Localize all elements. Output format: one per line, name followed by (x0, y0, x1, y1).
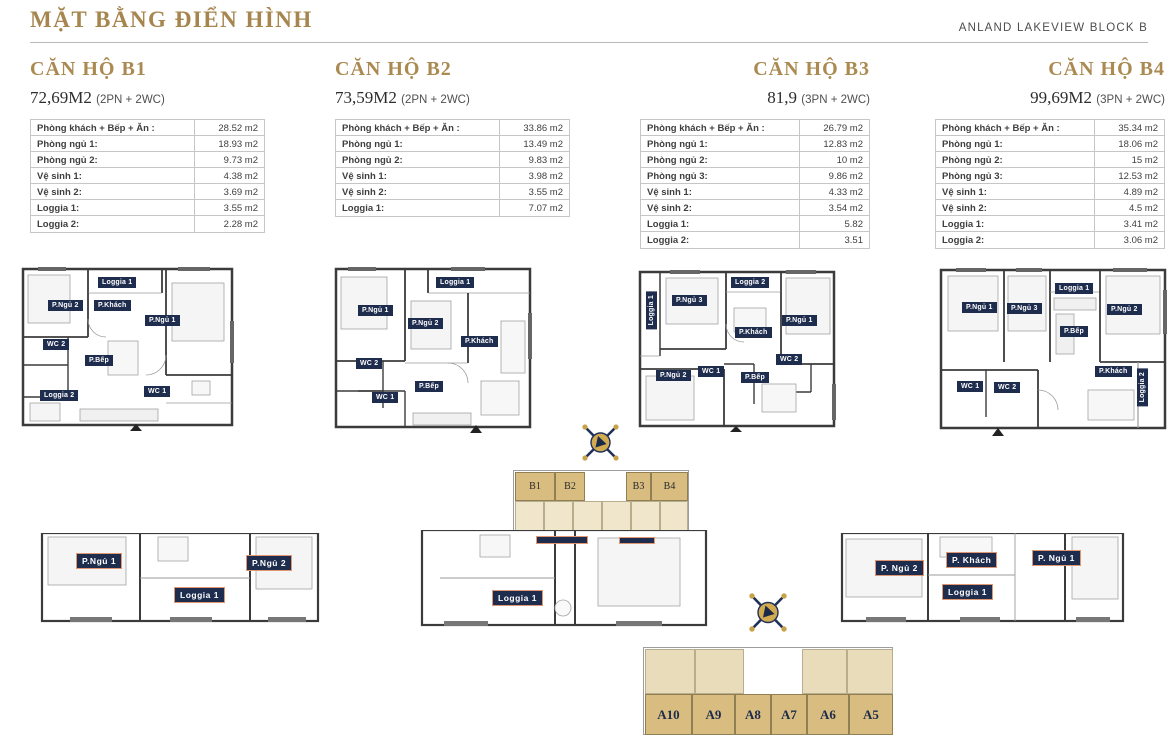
table-row: Phòng ngủ 3:9.86 m2 (641, 168, 869, 184)
row-value: 4.89 m2 (1094, 184, 1164, 199)
table-row: Vệ sinh 1:4.33 m2 (641, 184, 869, 200)
room-label-loggia-1: Loggia 1 (436, 277, 474, 288)
keyplan-cell-label: B1 (529, 481, 541, 492)
row-value: 15 m2 (1094, 152, 1164, 167)
keyplan-cell-label: B4 (664, 481, 676, 492)
cutoff-room-label (536, 536, 588, 544)
row-label: Phòng ngủ 3: (641, 168, 799, 183)
room-label-bedroom-2: P.Ngủ 2 (246, 555, 292, 571)
row-label: Phòng khách + Bếp + Ăn : (936, 120, 1094, 135)
row-value: 9.83 m2 (499, 152, 569, 167)
row-label: Vệ sinh 2: (641, 200, 799, 215)
row-label: Phòng ngủ 1: (31, 136, 194, 151)
row-value: 3.55 m2 (194, 200, 264, 215)
table-row: Phòng khách + Bếp + Ăn :28.52 m2 (31, 120, 264, 136)
table-row: Loggia 2:2.28 m2 (31, 216, 264, 232)
room-label-loggia-1: Loggia 1 (98, 277, 136, 288)
table-row: Phòng khách + Bếp + Ăn :35.34 m2 (936, 120, 1164, 136)
room-label-bedroom-1: P. Ngủ 1 (1032, 550, 1081, 566)
apartment-name: CĂN HỘ B2 (335, 58, 570, 81)
row-value: 18.93 m2 (194, 136, 264, 151)
keyplan-cell-empty (544, 501, 573, 533)
room-label-bedroom-2: P.Ngủ 2 (1107, 304, 1142, 315)
row-label: Loggia 1: (936, 216, 1094, 231)
floor-plan-bottom-right: P. Ngủ 2 P. Khách Loggia 1 P. Ngủ 1 (840, 533, 1125, 628)
apartment-column-b1: CĂN HỘ B1 72,69M2 (2PN + 2WC) Phòng khác… (30, 58, 265, 233)
row-value: 3.69 m2 (194, 184, 264, 199)
room-label-kitchen: P.Bếp (1060, 326, 1088, 337)
floor-plan-drawing-bottom-left (40, 533, 320, 628)
row-value: 10 m2 (799, 152, 869, 167)
row-label: Phòng ngủ 2: (936, 152, 1094, 167)
row-label: Phòng khách + Bếp + Ăn : (641, 120, 799, 135)
keyplan-cell-empty (573, 501, 602, 533)
room-label-living: P.Khách (735, 327, 772, 338)
room-label-loggia-1: Loggia 1 (1055, 283, 1093, 294)
keyplan-cell-empty (695, 649, 744, 694)
page-title: MẶT BẰNG ĐIỂN HÌNH (30, 7, 313, 33)
row-value: 35.34 m2 (1094, 120, 1164, 135)
keyplan-cell-label: A7 (781, 707, 797, 723)
row-value: 12.83 m2 (799, 136, 869, 151)
table-row: Phòng ngủ 1:12.83 m2 (641, 136, 869, 152)
keyplan-cell-a10: A10 (645, 694, 692, 735)
compass-icon (745, 588, 791, 636)
room-label-loggia-1: Loggia 1 (174, 587, 225, 603)
header-divider (30, 42, 1148, 43)
keyplan-cell-a6: A6 (807, 694, 849, 735)
keyplan-cell-label: A9 (706, 707, 722, 723)
table-row: Phòng ngủ 2:9.83 m2 (336, 152, 569, 168)
table-row: Phòng ngủ 2:9.73 m2 (31, 152, 264, 168)
room-label-kitchen: P.Bếp (85, 355, 113, 366)
room-label-loggia-2: Loggia 2 (1137, 368, 1148, 406)
row-label: Phòng khách + Bếp + Ăn : (31, 120, 194, 135)
room-label-wc-1: WC 1 (144, 386, 170, 397)
table-row: Vệ sinh 2:3.69 m2 (31, 184, 264, 200)
keyplan-cell-a9: A9 (692, 694, 735, 735)
apartment-config: (3PN + 2WC) (801, 94, 870, 106)
room-label-bedroom-1: P.Ngủ 1 (76, 553, 122, 569)
row-value: 12.53 m2 (1094, 168, 1164, 183)
table-row: Phòng khách + Bếp + Ăn :26.79 m2 (641, 120, 869, 136)
row-value: 4.5 m2 (1094, 200, 1164, 215)
cutoff-room-label (619, 537, 655, 544)
row-value: 4.33 m2 (799, 184, 869, 199)
floor-plan-drawing-b2 (333, 263, 533, 433)
room-label-wc-2: WC 2 (43, 339, 69, 350)
apartment-config: (2PN + 2WC) (96, 94, 165, 106)
row-label: Vệ sinh 1: (31, 168, 194, 183)
table-row: Vệ sinh 2:3.55 m2 (336, 184, 569, 200)
table-row: Phòng khách + Bếp + Ăn :33.86 m2 (336, 120, 569, 136)
table-row: Loggia 1:3.41 m2 (936, 216, 1164, 232)
table-row: Vệ sinh 2:3.54 m2 (641, 200, 869, 216)
keyplan-cell-b3: B3 (626, 472, 651, 501)
floor-plan-b2: P.Ngủ 1 Loggia 1 P.Ngủ 2 P.Khách WC 2 WC… (333, 263, 533, 433)
table-row: Phòng ngủ 2:15 m2 (936, 152, 1164, 168)
row-label: Vệ sinh 1: (936, 184, 1094, 199)
apartment-config: (2PN + 2WC) (401, 94, 470, 106)
keyplan-cell-b2: B2 (555, 472, 585, 501)
row-label: Vệ sinh 2: (936, 200, 1094, 215)
row-label: Phòng ngủ 2: (641, 152, 799, 167)
row-value: 9.73 m2 (194, 152, 264, 167)
apartment-area: 72,69M2 (2PN + 2WC) (30, 88, 265, 108)
row-label: Vệ sinh 1: (641, 184, 799, 199)
table-row: Phòng ngủ 1:13.49 m2 (336, 136, 569, 152)
row-value: 3.54 m2 (799, 200, 869, 215)
keyplan-cell-label: A6 (820, 707, 836, 723)
room-label-bedroom-3: P.Ngủ 3 (672, 295, 707, 306)
row-value: 4.38 m2 (194, 168, 264, 183)
room-label-bedroom-3: P.Ngủ 3 (1007, 303, 1042, 314)
apartment-config: (3PN + 2WC) (1096, 94, 1165, 106)
row-label: Vệ sinh 2: (31, 184, 194, 199)
row-label: Phòng ngủ 2: (31, 152, 194, 167)
row-value: 3.06 m2 (1094, 232, 1164, 248)
apartment-name: CĂN HỘ B4 (935, 58, 1165, 81)
row-value: 7.07 m2 (499, 200, 569, 216)
floor-plan-drawing-b4 (938, 262, 1168, 436)
block-label: ANLAND LAKEVIEW BLOCK B (959, 22, 1148, 34)
floor-plan-drawing-b3 (636, 264, 838, 432)
apartment-area-value: 99,69M2 (1030, 88, 1092, 107)
row-value: 28.52 m2 (194, 120, 264, 135)
keyplan-cell-b4: B4 (651, 472, 688, 501)
row-label: Phòng ngủ 1: (936, 136, 1094, 151)
table-row: Phòng ngủ 1:18.93 m2 (31, 136, 264, 152)
table-row: Loggia 1:7.07 m2 (336, 200, 569, 216)
keyplan-cell-b1: B1 (515, 472, 555, 501)
room-label-living: P.Khách (1095, 366, 1132, 377)
table-row: Vệ sinh 1:3.98 m2 (336, 168, 569, 184)
row-label: Loggia 2: (641, 232, 799, 248)
apartment-column-b3: CĂN HỘ B3 81,9 (3PN + 2WC) Phòng khách +… (640, 58, 870, 249)
row-value: 3.98 m2 (499, 168, 569, 183)
table-row: Phòng ngủ 3:12.53 m2 (936, 168, 1164, 184)
apartment-name: CĂN HỘ B3 (640, 58, 870, 81)
apartment-area-value: 81,9 (767, 88, 797, 107)
row-label: Phòng khách + Bếp + Ăn : (336, 120, 499, 135)
keyplan-cell-empty (847, 649, 893, 694)
table-row: Phòng ngủ 2:10 m2 (641, 152, 869, 168)
keyplan-block-a: A10 A9 A8 A7 A6 A5 (643, 647, 893, 735)
room-label-wc-1: WC 1 (698, 366, 724, 377)
room-label-wc-1: WC 1 (372, 392, 398, 403)
room-label-wc-1: WC 1 (957, 381, 983, 392)
table-row: Phòng ngủ 1:18.06 m2 (936, 136, 1164, 152)
apartment-area: 73,59M2 (2PN + 2WC) (335, 88, 570, 108)
keyplan-cell-a5: A5 (849, 694, 893, 735)
room-label-living: P. Khách (946, 552, 997, 568)
table-row: Loggia 2:3.51 (641, 232, 869, 248)
floor-plan-bottom-center: Loggia 1 (420, 530, 710, 635)
row-label: Phòng ngủ 1: (336, 136, 499, 151)
row-label: Loggia 2: (936, 232, 1094, 248)
keyplan-cell-label: A8 (745, 707, 761, 723)
keyplan-cell-empty (645, 649, 695, 694)
apartment-area-value: 73,59M2 (335, 88, 397, 107)
room-label-loggia-2: Loggia 2 (731, 277, 769, 288)
floor-plan-drawing-bottom-center (420, 530, 710, 635)
apartment-area-value: 72,69M2 (30, 88, 92, 107)
row-label: Phòng ngủ 3: (936, 168, 1094, 183)
row-value: 18.06 m2 (1094, 136, 1164, 151)
keyplan-cell-label: A5 (863, 707, 879, 723)
row-label: Loggia 1: (641, 216, 799, 231)
room-label-kitchen: P.Bếp (415, 381, 443, 392)
row-value: 2.28 m2 (194, 216, 264, 232)
row-value: 3.51 (799, 232, 869, 248)
row-label: Phòng ngủ 2: (336, 152, 499, 167)
keyplan-block-b: B1 B2 B3 B4 (513, 470, 689, 533)
apartment-name: CĂN HỘ B1 (30, 58, 265, 81)
table-row: Loggia 2:3.06 m2 (936, 232, 1164, 248)
keyplan-cell-a8: A8 (735, 694, 771, 735)
room-label-living: P.Khách (461, 336, 498, 347)
row-value: 5.82 (799, 216, 869, 231)
row-value: 3.41 m2 (1094, 216, 1164, 231)
row-label: Vệ sinh 1: (336, 168, 499, 183)
keyplan-cell-label: B2 (564, 481, 576, 492)
keyplan-cell-empty (631, 501, 660, 533)
room-label-bedroom-2: P.Ngủ 2 (408, 318, 443, 329)
room-label-bedroom-1: P.Ngủ 1 (145, 315, 180, 326)
room-label-bedroom-2: P.Ngủ 2 (656, 370, 691, 381)
floor-plan-bottom-left: P.Ngủ 1 Loggia 1 P.Ngủ 2 (40, 533, 320, 628)
row-value: 9.86 m2 (799, 168, 869, 183)
table-row: Vệ sinh 2:4.5 m2 (936, 200, 1164, 216)
room-label-loggia-2: Loggia 2 (40, 390, 78, 401)
table-row: Loggia 1:3.55 m2 (31, 200, 264, 216)
keyplan-cell-label: A10 (657, 707, 679, 723)
floor-plan-b4: P.Ngủ 1 P.Ngủ 3 Loggia 1 P.Ngủ 2 P.Bếp W… (938, 262, 1168, 436)
room-label-bedroom-2: P.Ngủ 2 (48, 300, 83, 311)
compass-icon (578, 420, 623, 465)
room-label-wc-2: WC 2 (776, 354, 802, 365)
room-label-bedroom-1: P.Ngủ 1 (358, 305, 393, 316)
room-label-loggia-1: Loggia 1 (492, 590, 543, 606)
keyplan-cell-empty (602, 501, 631, 533)
room-label-wc-2: WC 2 (994, 382, 1020, 393)
room-label-bedroom-2: P. Ngủ 2 (875, 560, 924, 576)
room-area-table: Phòng khách + Bếp + Ăn :28.52 m2 Phòng n… (30, 119, 265, 233)
keyplan-cell-empty (660, 501, 688, 533)
keyplan-cell-label: B3 (633, 481, 645, 492)
room-label-bedroom-1: P.Ngủ 1 (782, 315, 817, 326)
row-value: 13.49 m2 (499, 136, 569, 151)
table-row: Loggia 1:5.82 (641, 216, 869, 232)
apartment-column-b4: CĂN HỘ B4 99,69M2 (3PN + 2WC) Phòng khác… (935, 58, 1165, 249)
room-label-wc-2: WC 2 (356, 358, 382, 369)
room-label-bedroom-1: P.Ngủ 1 (962, 302, 997, 313)
row-value: 33.86 m2 (499, 120, 569, 135)
room-label-living: P.Khách (94, 300, 131, 311)
apartment-area: 99,69M2 (3PN + 2WC) (935, 88, 1165, 108)
keyplan-cell-a7: A7 (771, 694, 807, 735)
floor-plan-drawing-bottom-right (840, 533, 1125, 628)
room-area-table: Phòng khách + Bếp + Ăn :26.79 m2 Phòng n… (640, 119, 870, 249)
table-row: Vệ sinh 1:4.38 m2 (31, 168, 264, 184)
table-row: Vệ sinh 1:4.89 m2 (936, 184, 1164, 200)
room-label-loggia-1: Loggia 1 (646, 291, 657, 329)
row-label: Loggia 1: (336, 200, 499, 216)
row-label: Phòng ngủ 1: (641, 136, 799, 151)
row-value: 26.79 m2 (799, 120, 869, 135)
floor-plan-b1: Loggia 1 P.Ngủ 2 P.Khách P.Ngủ 1 WC 2 P.… (20, 263, 235, 431)
room-label-loggia-1: Loggia 1 (942, 584, 993, 600)
floor-plan-b3: Loggia 1 P.Ngủ 3 Loggia 2 P.Ngủ 1 P.Khác… (636, 264, 838, 432)
keyplan-cell-empty (802, 649, 847, 694)
keyplan-cell-empty (515, 501, 544, 533)
row-label: Vệ sinh 2: (336, 184, 499, 199)
row-value: 3.55 m2 (499, 184, 569, 199)
room-label-kitchen: P.Bếp (741, 372, 769, 383)
row-label: Loggia 1: (31, 200, 194, 215)
row-label: Loggia 2: (31, 216, 194, 232)
room-area-table: Phòng khách + Bếp + Ăn :35.34 m2 Phòng n… (935, 119, 1165, 249)
apartment-area: 81,9 (3PN + 2WC) (640, 88, 870, 108)
room-area-table: Phòng khách + Bếp + Ăn :33.86 m2 Phòng n… (335, 119, 570, 217)
apartment-column-b2: CĂN HỘ B2 73,59M2 (2PN + 2WC) Phòng khác… (335, 58, 570, 217)
brochure-page: MẶT BẰNG ĐIỂN HÌNH ANLAND LAKEVIEW BLOCK… (0, 0, 1174, 750)
